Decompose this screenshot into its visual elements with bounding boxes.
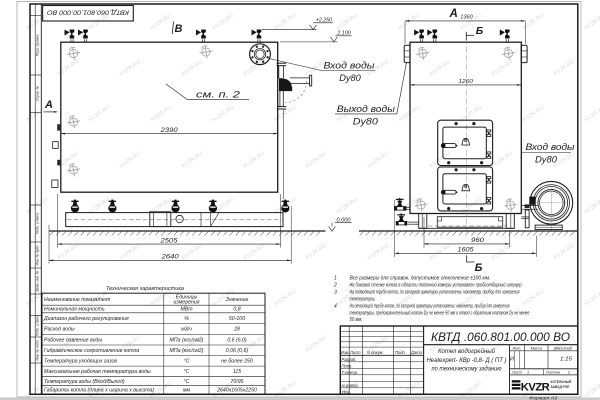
svg-text:Вход воды: Вход воды [526,142,575,153]
svg-text:Выход воды: Выход воды [337,104,395,115]
svg-text:Вход воды: Вход воды [324,60,375,71]
svg-text:2: 2 [333,283,337,289]
svg-text:+2.250: +2.250 [316,18,332,24]
svg-text:1: 1 [527,371,529,375]
svg-text:Утв.: Утв. [342,389,351,394]
svg-text:Лист: Лист [511,371,522,375]
svg-text:N докум.: N докум. [367,350,384,355]
svg-text:2640х1605х2250: 2640х1605х2250 [216,388,257,394]
svg-text:%: % [184,316,189,322]
svg-text:Максимальная рабочая температу: Максимальная рабочая температура воды [44,369,151,375]
svg-text:Т.контр.: Т.контр. [342,370,359,375]
svg-text:Подп.: Подп. [395,350,406,355]
svg-text:Б: Б [475,262,483,274]
svg-text:4: 4 [334,303,337,309]
svg-text:1360: 1360 [460,14,473,20]
svg-text:Расход воды: Расход воды [44,327,75,333]
svg-text:Изм.: Изм. [341,350,350,355]
svg-text:0,6 (6,0): 0,6 (6,0) [227,337,247,343]
svg-text:Все размеры для справок, допус: Все размеры для справок, допустимое откл… [350,275,491,281]
svg-text:Справ. №: Справ. № [36,85,40,101]
svg-text:960: 960 [471,238,485,244]
svg-text:температуры.: температуры. [350,297,376,303]
svg-text:Б: Б [476,25,484,37]
svg-text:KVZR: KVZR [521,381,550,393]
svg-text:°С: °С [184,369,190,375]
svg-text:Инв. № подл.: Инв. № подл. [36,339,40,360]
svg-text:Подп. и дата: Подп. и дата [36,315,40,336]
svg-text:мм: мм [183,388,191,394]
svg-text:Масштаб: Масштаб [554,347,573,351]
svg-text:3: 3 [334,290,337,296]
svg-text:Техническая характеристика: Техническая характеристика [106,286,184,292]
svg-text:На отводящей трубе котла ,до з: На отводящей трубе котла ,до запорной ар… [350,302,510,309]
svg-text:Котел водогрейный: Котел водогрейный [438,348,496,355]
svg-text:КВТД .060.801.00.000 ВО: КВТД .060.801.00.000 ВО [431,330,570,344]
svg-text:50-100: 50-100 [229,316,245,322]
svg-text:Температура воды (Вход/Выход): Температура воды (Вход/Выход) [44,379,125,385]
svg-text:Габариты котла (длина х ширина: Габариты котла (длина х ширина х высота) [44,388,154,394]
svg-text:В: В [175,23,183,35]
svg-text:2640: 2640 [160,255,179,261]
svg-text:0,8: 0,8 [233,307,240,313]
svg-text:1605: 1605 [458,248,475,254]
svg-text:МПа (кгс/см2): МПа (кгс/см2) [170,348,204,354]
svg-text:Dу80: Dу80 [535,155,558,166]
svg-text:Dу80: Dу80 [353,117,379,128]
svg-text:Подп. и дата: Подп. и дата [36,213,40,234]
svg-text:1:15: 1:15 [560,356,573,362]
svg-text:Диапазон рабочего регулировани: Диапазон рабочего регулирования [43,316,129,322]
svg-text:На подводящей трубе котла, д: На подводящей трубе котла, до запорной а… [350,289,520,296]
svg-text:Рабочее давление воды: Рабочее давление воды [44,337,102,343]
svg-text:1260: 1260 [458,79,474,85]
svg-text:Температура уходящих газов: Температура уходящих газов [44,359,117,365]
svg-text:2390: 2390 [159,128,178,134]
svg-text:Разраб.: Разраб. [342,357,357,362]
svg-text:Heatexpert- КВр -0,8- Д ( ПТ ): Heatexpert- КВр -0,8- Д ( ПТ ) [427,358,507,364]
svg-text:температуры, предохранительный: температуры, предохранительный клапан Dу… [350,309,530,316]
svg-text:И: И [510,356,514,362]
svg-text:КВТД.060.801.00.000 ВО: КВТД.060.801.00.000 ВО [47,9,129,16]
svg-text:Номинальная мощность: Номинальная мощность [44,307,105,313]
svg-text:°С: °С [184,379,190,385]
svg-text:Гидравлическое сопротивление к: Гидравлическое сопротивление котла [44,348,139,354]
svg-text:КОТЕЛЬНЫЙ: КОТЕЛЬНЫЙ [551,380,572,384]
svg-text:МВт: МВт [180,307,193,313]
svg-text:2505: 2505 [159,238,178,244]
svg-text:МПа (кгс/см2): МПа (кгс/см2) [170,337,204,343]
svg-text:Взам. инв. №: Взам. инв. № [36,270,40,291]
svg-text:Пров.: Пров. [342,363,353,368]
svg-text:50 мм.: 50 мм. [350,317,363,323]
svg-text:по техническому заданию: по техническому заданию [432,366,502,372]
svg-text:70/95: 70/95 [231,379,244,385]
svg-text:измерения: измерения [174,300,200,306]
svg-text:Дата: Дата [410,350,423,355]
svg-text:Н.контр.: Н.контр. [342,383,359,388]
svg-text:°С: °С [184,359,190,365]
svg-text:Лист: Лист [349,350,361,355]
svg-text:115: 115 [233,369,241,375]
svg-text:Формат А3: Формат А3 [529,396,558,400]
svg-text:А: А [449,8,458,20]
svg-text:Инв. № дубл.: Инв. № дубл. [36,245,40,266]
svg-text:Значение: Значение [226,297,249,303]
svg-text:см. п. 2: см. п. 2 [196,89,241,100]
svg-text:1: 1 [334,275,337,281]
svg-text:Наименование показателя: Наименование показателя [44,297,110,303]
svg-text:ЗАВОД РЭП: ЗАВОД РЭП [551,385,571,389]
svg-text:м3/ч: м3/ч [181,327,192,333]
svg-text:На боковой стенке котла в обла: На боковой стенке котла в области топочн… [350,282,522,289]
svg-text:Dу80: Dу80 [339,73,361,84]
svg-text:А: А [44,99,53,111]
svg-text:Лит.: Лит. [512,347,522,351]
svg-text:2.100: 2.100 [336,31,351,37]
svg-text:0,06 (0,6): 0,06 (0,6) [226,348,248,354]
svg-text:0.000: 0.000 [337,217,351,223]
svg-text:Перв. примен.: Перв. примен. [36,34,40,57]
svg-text:Масса: Масса [531,347,542,351]
svg-text:28: 28 [233,327,240,333]
svg-text:Листов: Листов [545,371,560,375]
svg-text:не более 250: не более 250 [221,359,253,365]
